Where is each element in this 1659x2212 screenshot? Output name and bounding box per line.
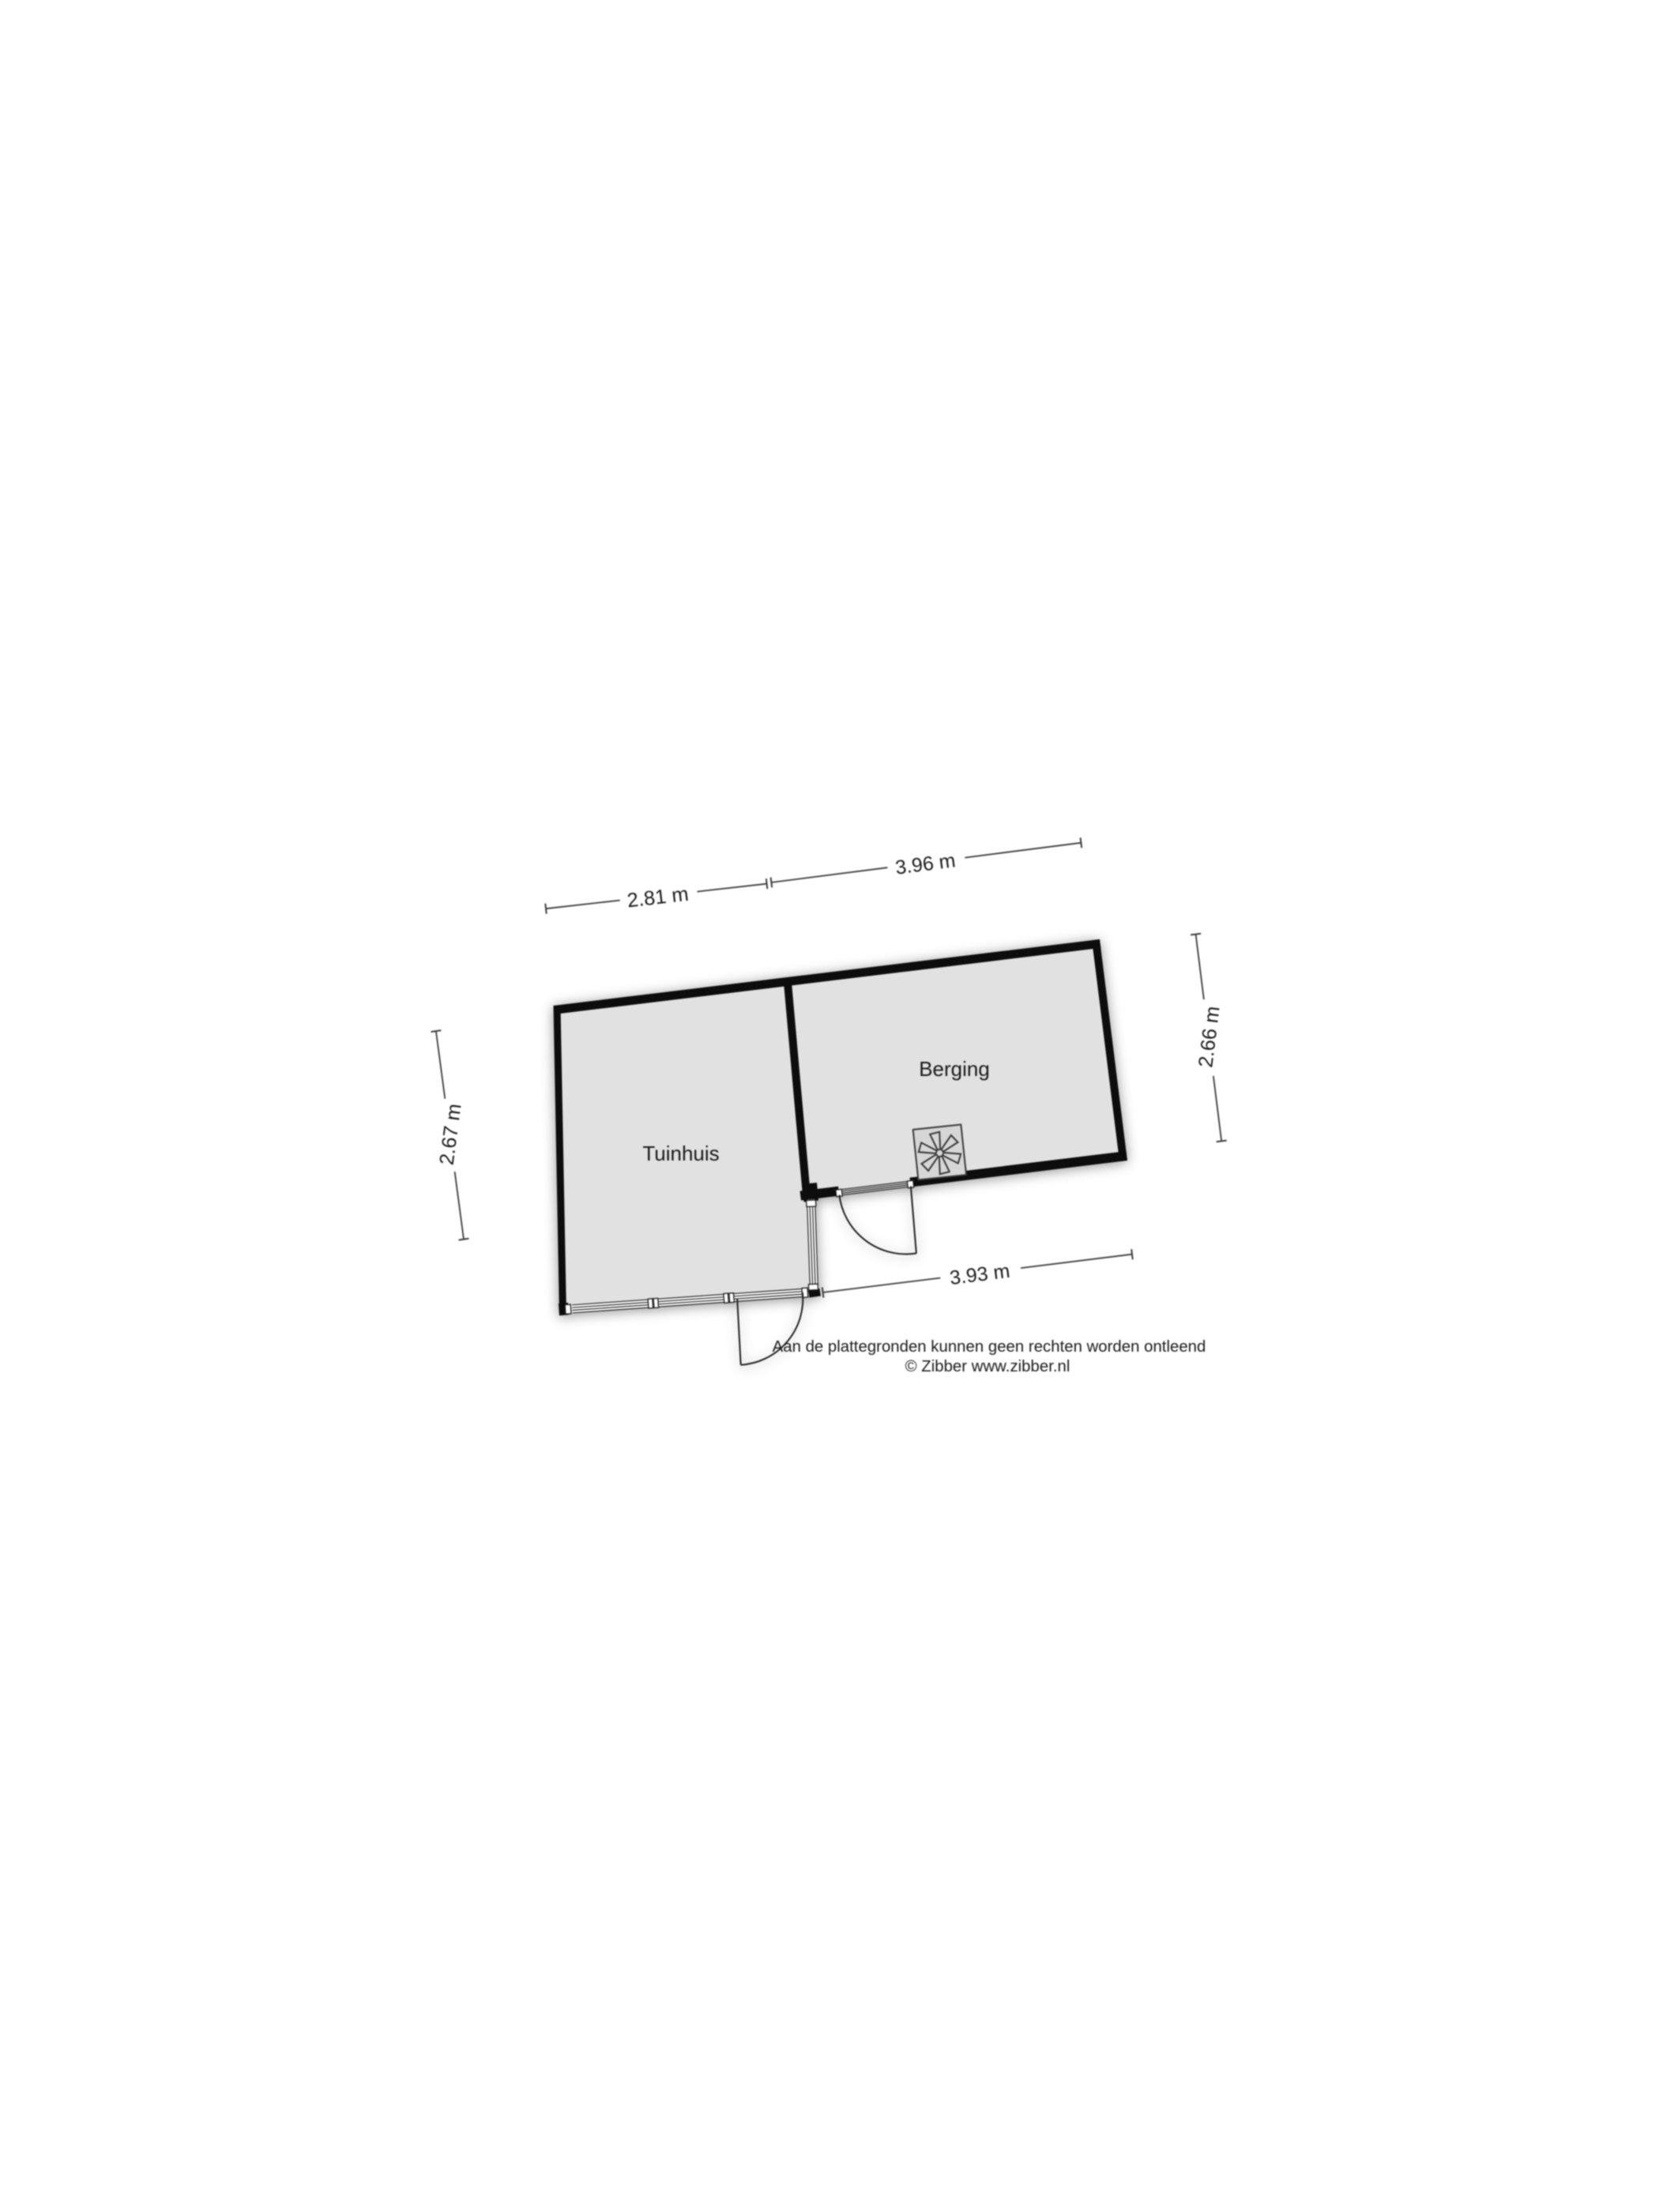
svg-text:© Zibber www.zibber.nl: © Zibber www.zibber.nl bbox=[905, 1358, 1070, 1375]
svg-text:Tuinhuis: Tuinhuis bbox=[642, 1142, 719, 1165]
svg-text:Berging: Berging bbox=[919, 1057, 990, 1081]
svg-text:Aan de plattegronden kunnen ge: Aan de plattegronden kunnen geen rechten… bbox=[773, 1338, 1206, 1356]
